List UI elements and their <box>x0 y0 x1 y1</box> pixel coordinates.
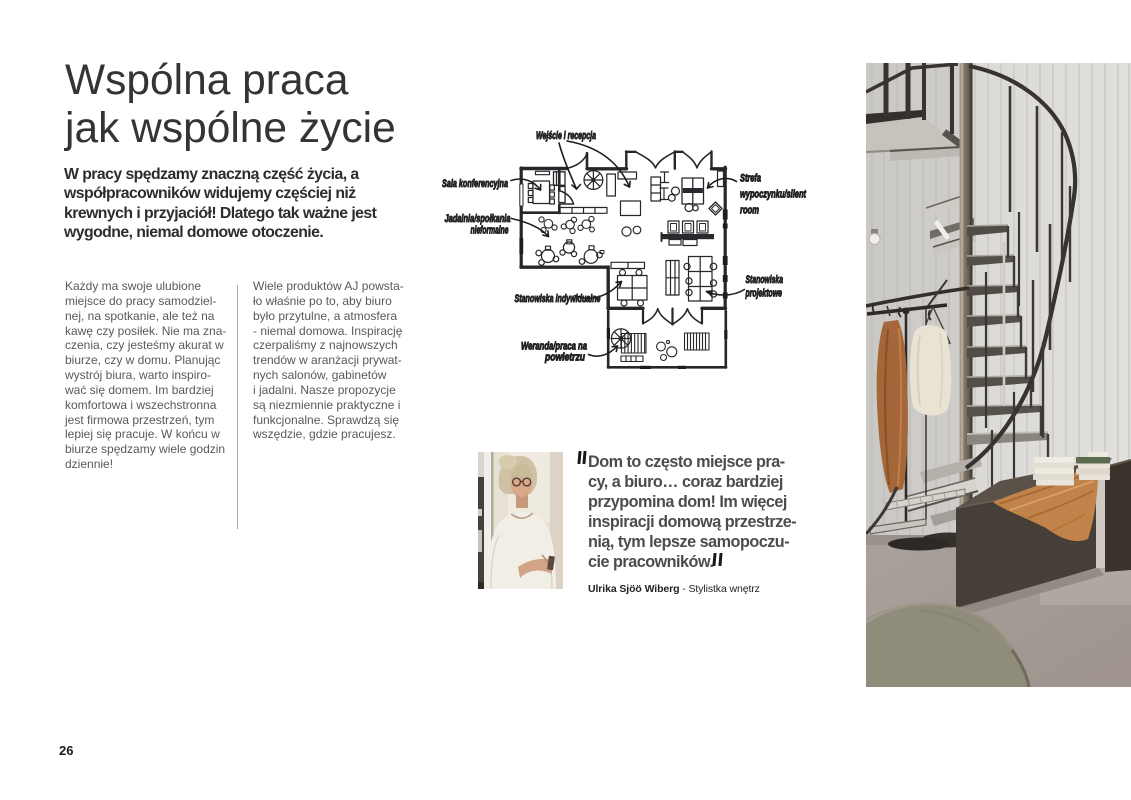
svg-text:Sala konferencyjna: Sala konferencyjna <box>442 178 508 190</box>
svg-text:Strefa: Strefa <box>740 173 761 185</box>
svg-text:powietrzu: powietrzu <box>544 352 585 364</box>
svg-text:room: room <box>740 205 759 217</box>
svg-text:nieformalne: nieformalne <box>471 225 509 237</box>
svg-text:Wejście i recepcja: Wejście i recepcja <box>536 130 596 142</box>
svg-text:Jadalnia/społkania: Jadalnia/społkania <box>445 213 511 225</box>
svg-text:projektowe: projektowe <box>745 288 782 300</box>
svg-text:wypoczynku/silent: wypoczynku/silent <box>740 189 807 201</box>
svg-text:Stanowiska: Stanowiska <box>746 274 784 286</box>
